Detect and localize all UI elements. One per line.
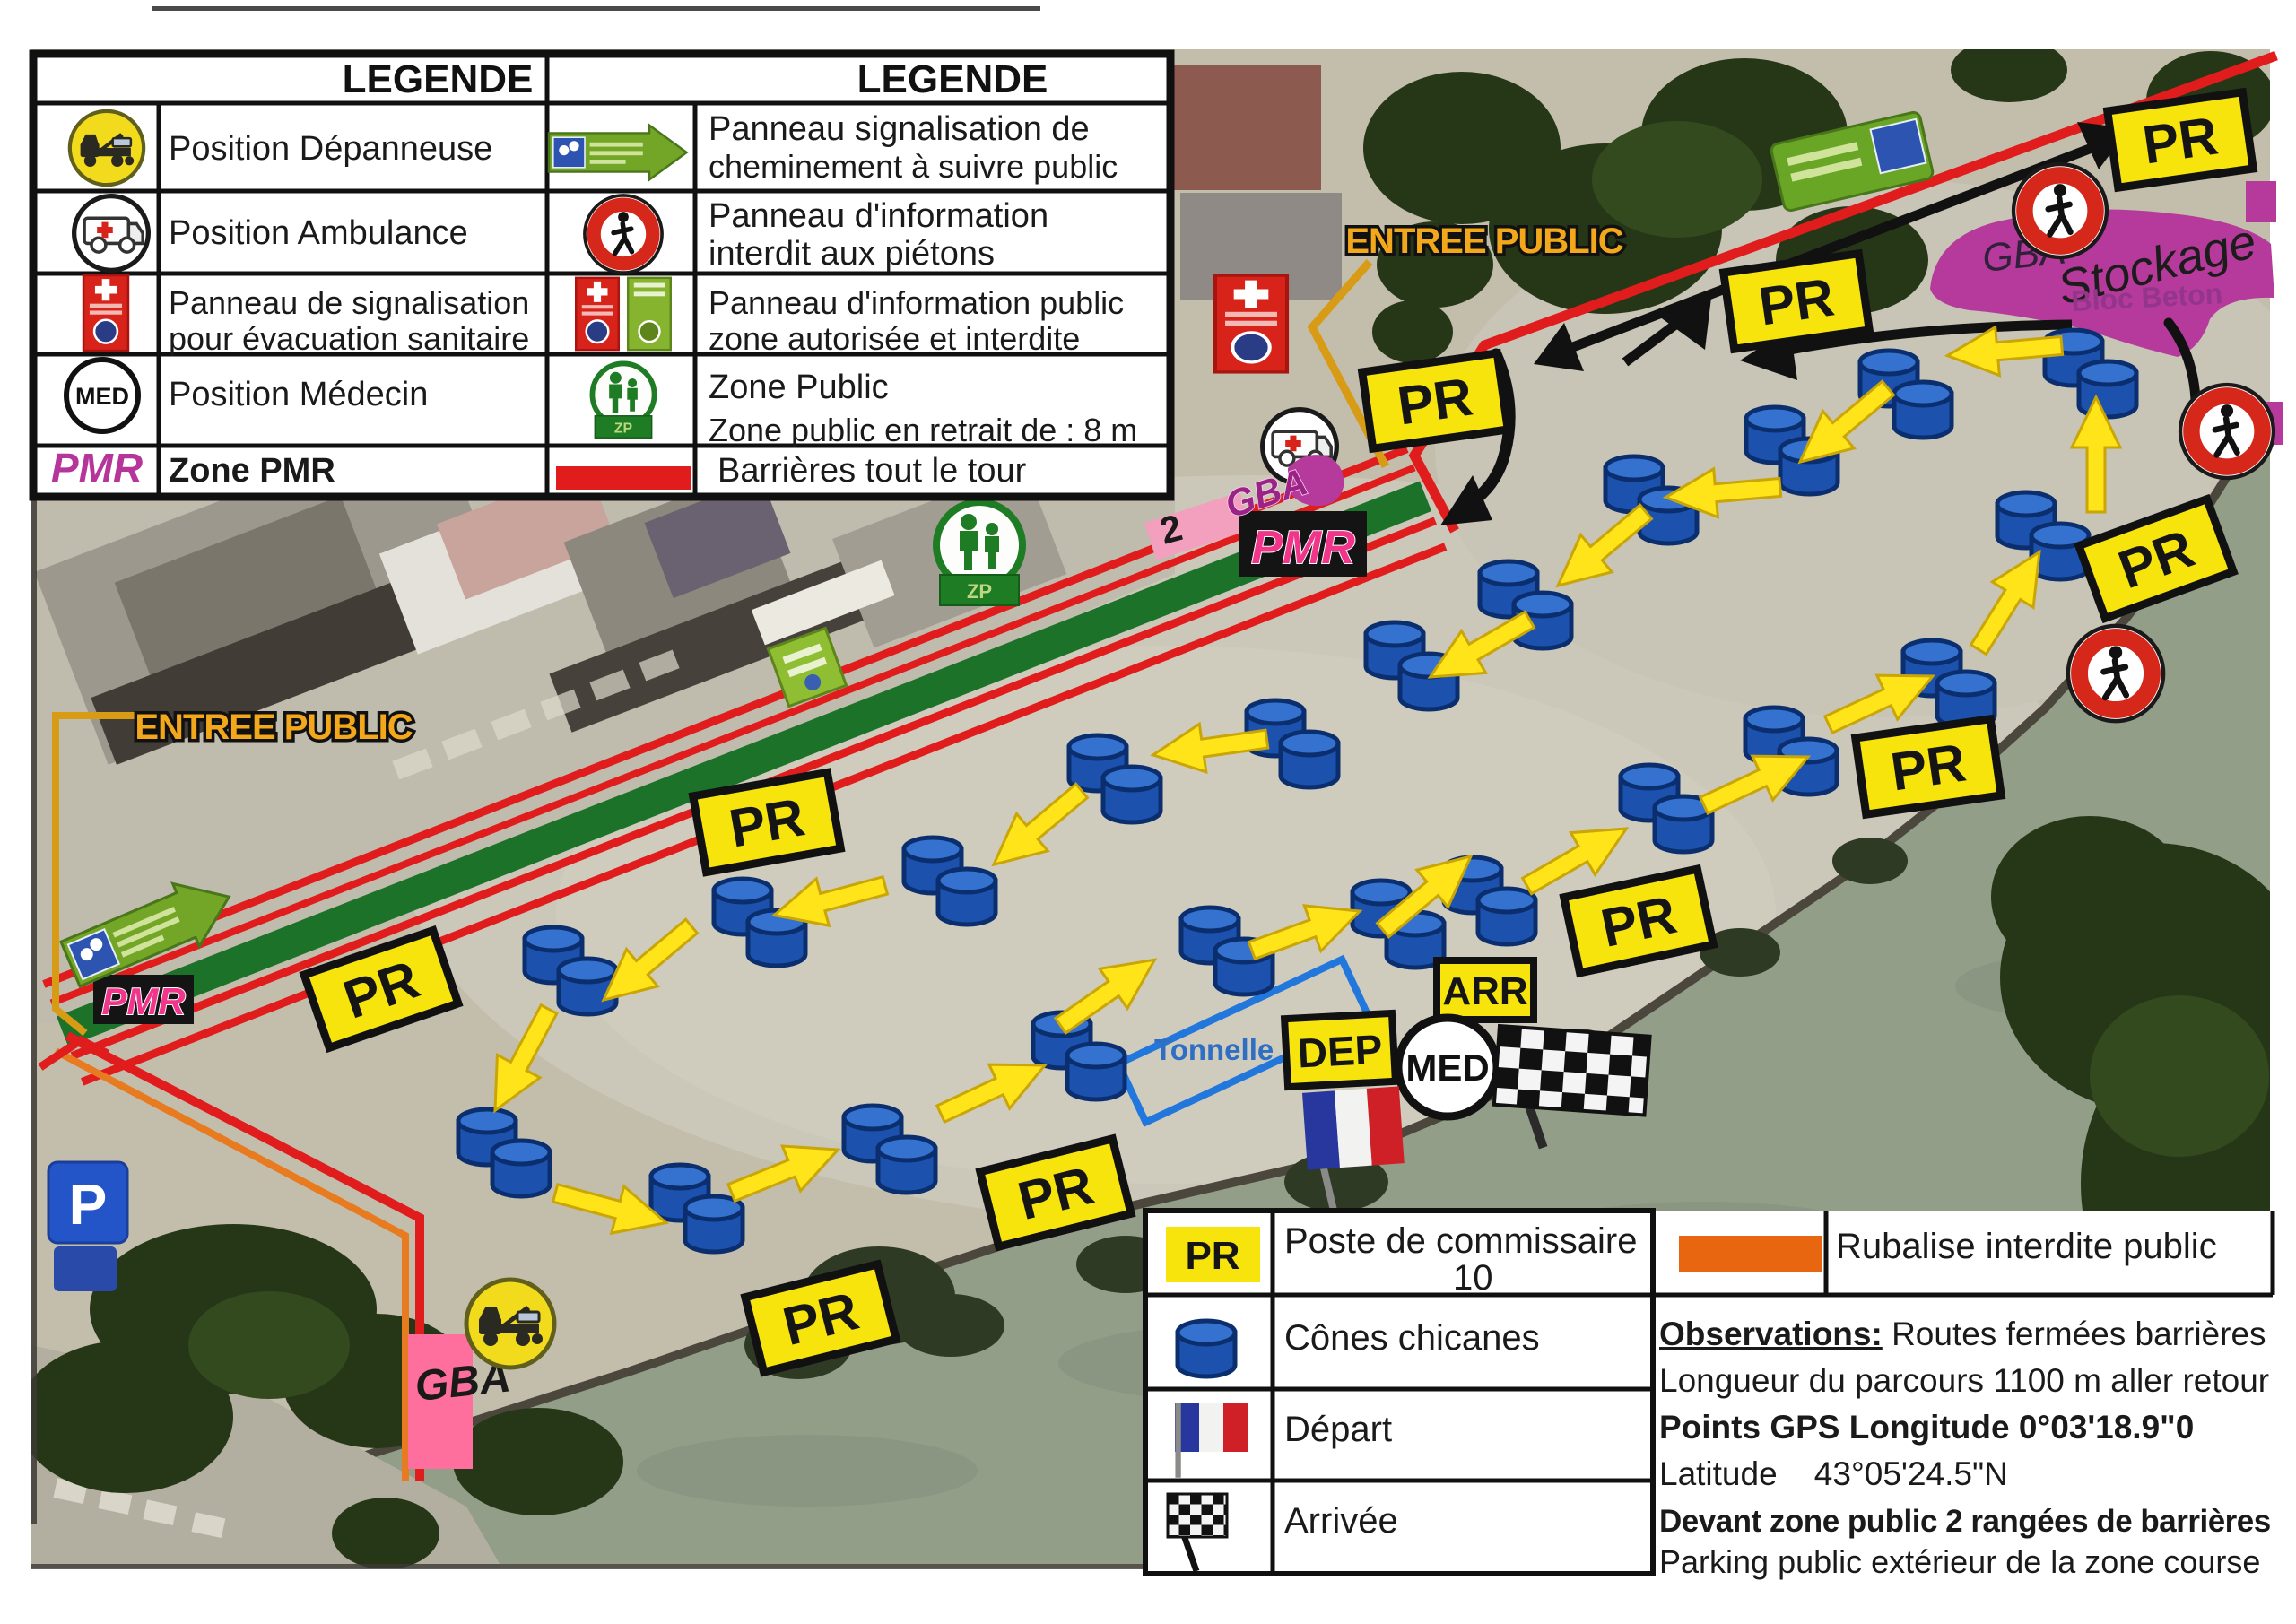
svg-text:Position Ambulance: Position Ambulance xyxy=(169,214,468,252)
svg-text:PMR: PMR xyxy=(101,980,186,1022)
svg-text:Poste de commissaire: Poste de commissaire xyxy=(1284,1221,1637,1261)
svg-text:Position Dépanneuse: Position Dépanneuse xyxy=(169,130,492,168)
svg-text:ENTREE PUBLIC: ENTREE PUBLIC xyxy=(1345,221,1622,261)
svg-text:Panneau de signalisation: Panneau de signalisation xyxy=(169,284,529,321)
svg-text:pour évacuation sanitaire: pour évacuation sanitaire xyxy=(169,320,529,357)
svg-text:LEGENDE: LEGENDE xyxy=(343,57,534,101)
svg-text:Cônes chicanes: Cônes chicanes xyxy=(1284,1318,1540,1358)
svg-text:Tonnelle: Tonnelle xyxy=(1154,1033,1274,1066)
svg-text:ARR: ARR xyxy=(1442,969,1527,1013)
svg-text:Devant zone public 2 rangées d: Devant zone public 2 rangées de barrière… xyxy=(1659,1504,2271,1539)
svg-text:10: 10 xyxy=(1453,1258,1493,1298)
svg-text:Panneau signalisation de: Panneau signalisation de xyxy=(709,110,1090,148)
svg-text:Barrières tout le tour: Barrières tout le tour xyxy=(717,452,1027,490)
svg-text:Observations: Routes fermées b: Observations: Routes fermées barrières xyxy=(1659,1316,2266,1352)
svg-text:Panneau d'information public: Panneau d'information public xyxy=(709,284,1124,321)
svg-text:Rubalise interdite public: Rubalise interdite public xyxy=(1836,1227,2217,1266)
svg-text:Latitude 43°05'24.5"N: Latitude 43°05'24.5"N xyxy=(1659,1455,2008,1492)
svg-text:Zone Public: Zone Public xyxy=(709,369,889,406)
svg-text:Longueur du parcours 1100 m al: Longueur du parcours 1100 m aller retour xyxy=(1659,1362,2269,1399)
svg-text:PR: PR xyxy=(1185,1234,1239,1278)
svg-text:DEP: DEP xyxy=(1296,1026,1383,1077)
svg-text:Zone public en retrait de : 8: Zone public en retrait de : 8 m xyxy=(709,412,1137,448)
svg-text:Points GPS Longitude 0°03'18.9: Points GPS Longitude 0°03'18.9"0 xyxy=(1659,1409,2194,1446)
svg-text:cheminement à suivre public: cheminement à suivre public xyxy=(709,148,1118,185)
svg-text:Départ: Départ xyxy=(1284,1410,1392,1449)
svg-text:interdit aux piétons: interdit aux piétons xyxy=(709,235,995,273)
svg-text:ENTREE PUBLIC: ENTREE PUBLIC xyxy=(135,708,412,747)
svg-text:Zone PMR: Zone PMR xyxy=(169,452,335,490)
svg-text:MED: MED xyxy=(1405,1046,1489,1089)
svg-text:Position Médecin: Position Médecin xyxy=(169,376,428,413)
svg-text:PMR: PMR xyxy=(1251,522,1355,574)
svg-text:zone autorisée et interdite: zone autorisée et interdite xyxy=(709,320,1080,357)
svg-text:Arrivée: Arrivée xyxy=(1284,1501,1398,1541)
svg-text:Panneau d'information: Panneau d'information xyxy=(709,197,1048,235)
svg-text:PMR: PMR xyxy=(51,445,143,491)
svg-text:Parking public extérieur de la: Parking public extérieur de la zone cour… xyxy=(1659,1543,2260,1580)
svg-text:LEGENDE: LEGENDE xyxy=(857,57,1048,101)
svg-text:P: P xyxy=(69,1172,108,1237)
